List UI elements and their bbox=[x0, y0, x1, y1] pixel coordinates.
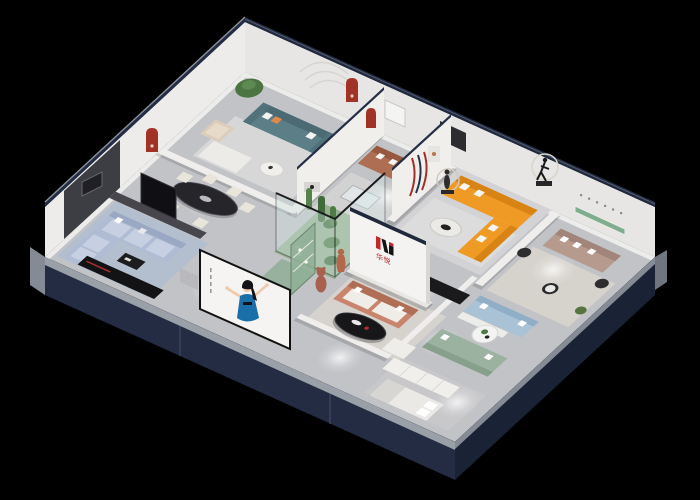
logo-mark-red-bar bbox=[376, 236, 381, 250]
red-arch-niche-wall bbox=[366, 108, 376, 128]
red-arch-niche-center bbox=[346, 78, 358, 102]
terracotta-figure bbox=[337, 249, 346, 272]
teddy-bear-statue bbox=[316, 267, 327, 293]
isometric-scene: 华悦 bbox=[0, 0, 700, 500]
red-arch-niche-left bbox=[146, 128, 158, 152]
showroom-render: 华悦 bbox=[0, 0, 700, 500]
woman-belt bbox=[243, 302, 252, 305]
